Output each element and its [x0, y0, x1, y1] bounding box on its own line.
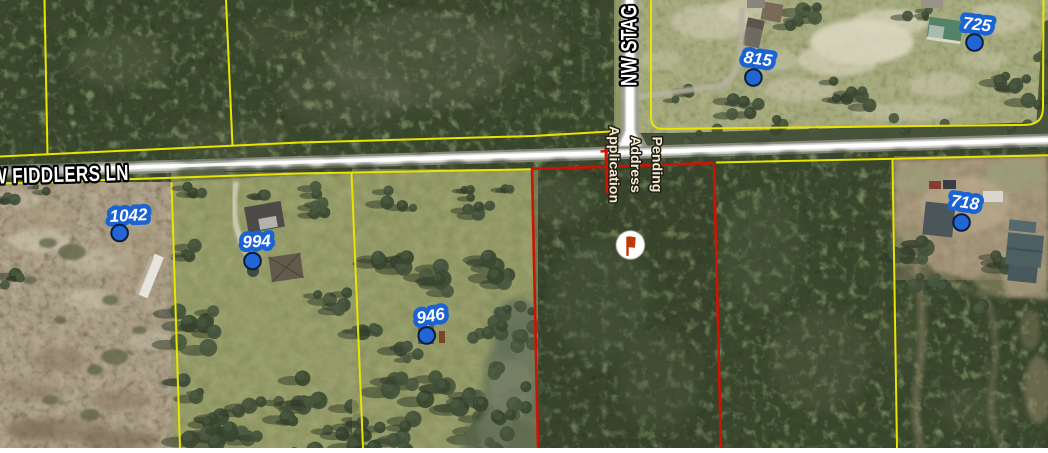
svg-text:W FIDDLERS LN: W FIDDLERS LN: [0, 161, 129, 189]
svg-text:815: 815: [743, 48, 774, 71]
svg-text:1042: 1042: [109, 205, 148, 226]
svg-text:Pending: Pending: [648, 137, 664, 193]
svg-text:718: 718: [950, 191, 981, 214]
svg-text:725: 725: [962, 13, 993, 35]
svg-text:Address: Address: [627, 136, 643, 193]
svg-text:Application: Application: [605, 126, 621, 203]
svg-text:994: 994: [242, 231, 272, 251]
svg-text:NW STAG: NW STAG: [618, 4, 643, 86]
